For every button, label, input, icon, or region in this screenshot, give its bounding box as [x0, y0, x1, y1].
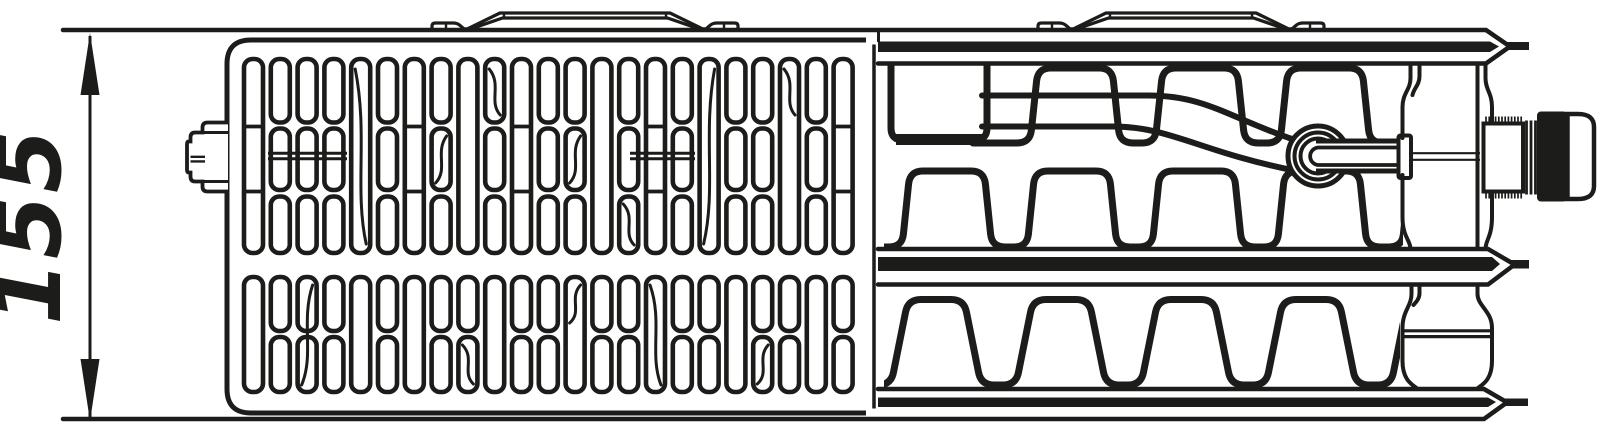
- fin-through-slot: [462, 345, 473, 384]
- grille-slot: [432, 197, 451, 254]
- valve-knob: [1537, 112, 1568, 202]
- radiator-panels: [63, 30, 1529, 419]
- lower-channel-left-inner: [1414, 286, 1420, 305]
- grille-slot: [512, 337, 531, 392]
- upper-channel-left-wall: [1403, 65, 1411, 138]
- dimension-arrow-bottom: [81, 359, 100, 421]
- drawing-svg: 155: [0, 0, 1600, 424]
- bracket-right-inner: [1077, 18, 1285, 29]
- upper-channel-left-inner: [1413, 65, 1420, 95]
- grille-slot: [432, 59, 451, 123]
- radiator-technical-drawing: 155: [0, 0, 1600, 424]
- dimension-label: 155: [0, 127, 82, 325]
- grille-slot: [539, 337, 558, 392]
- grille-slot: [834, 277, 853, 331]
- fin-through-slot: [757, 345, 768, 384]
- grille-slot: [834, 59, 853, 253]
- valve-ring-grooves: [1527, 121, 1536, 195]
- grille-slot: [592, 277, 611, 331]
- depth-dimension: 155: [0, 33, 100, 421]
- grille-slot: [485, 197, 504, 254]
- grille-slot: [539, 59, 558, 123]
- first-fin-foot-bar: [896, 134, 982, 145]
- top-grille: [187, 40, 874, 413]
- grille-slot: [807, 129, 826, 191]
- grille-slot: [271, 59, 290, 123]
- grille-slot: [753, 59, 772, 123]
- grille-slot: [592, 337, 611, 392]
- grille-slot: [432, 277, 451, 331]
- grille-slot: [458, 277, 477, 331]
- grille-slot: [298, 59, 317, 123]
- fin-through-slot: [570, 285, 581, 323]
- grille-slot: [539, 129, 558, 191]
- grille-slot: [378, 337, 397, 392]
- grille-slot: [726, 59, 745, 123]
- grille-slot: [566, 59, 585, 123]
- grille-slot: [351, 277, 370, 392]
- valve-seat-assembly: [1288, 126, 1480, 186]
- grille-slot: [539, 197, 558, 254]
- fin-through-slot: [704, 69, 715, 244]
- grille-slot: [378, 59, 397, 123]
- fin-through-slot: [623, 204, 634, 245]
- front-panel-band: [878, 398, 1496, 408]
- grille-slot: [378, 197, 397, 254]
- grille-slot: [378, 277, 397, 331]
- grille-slot: [405, 59, 424, 253]
- fin-through-slot: [489, 69, 500, 115]
- grille-slot: [432, 337, 451, 392]
- grille-slot: [807, 197, 826, 254]
- bracket-left-inner: [471, 18, 699, 29]
- grille-slot: [512, 59, 531, 253]
- grille-slot: [834, 337, 853, 392]
- grille-slot: [673, 59, 692, 123]
- grille-slot: [458, 59, 477, 253]
- grille-slot: [780, 277, 799, 331]
- pipe-bore: [1310, 148, 1402, 166]
- grille-slot: [324, 277, 343, 331]
- grille-slot: [244, 277, 263, 392]
- rear-panel-band: [878, 42, 1499, 53]
- grille-slot: [646, 59, 665, 253]
- fin-through-slot: [355, 69, 366, 244]
- lower-channel-crossbar: [1405, 331, 1491, 337]
- grille-slot: [324, 337, 343, 392]
- wall-brackets: [432, 12, 1324, 30]
- grille-slot: [271, 197, 290, 254]
- grille-slot: [244, 59, 263, 253]
- grille-slot: [807, 59, 826, 123]
- grille-slot: [726, 129, 745, 191]
- valve-body: [1484, 112, 1595, 202]
- grille-slot: [619, 59, 638, 123]
- front-panel-stub: [1505, 399, 1529, 407]
- upper-channel-left-lower: [1403, 175, 1411, 249]
- grille-slot: [780, 337, 799, 392]
- fin-through-slot: [302, 285, 313, 385]
- grille-slot: [271, 277, 290, 331]
- fin-through-slot: [436, 136, 447, 183]
- grille-slot: [673, 337, 692, 392]
- grille-slot: [566, 197, 585, 254]
- first-wide-fin: [891, 64, 987, 140]
- valve-threaded-section: [1484, 124, 1524, 192]
- grille-slot: [592, 59, 611, 253]
- grille-slots: [244, 59, 854, 392]
- grille-slot: [673, 277, 692, 331]
- fin-through-slot: [650, 285, 661, 385]
- water-channels: [1403, 65, 1493, 388]
- grille-slot: [512, 277, 531, 331]
- grille-slot: [485, 277, 504, 392]
- pipe-end-flange: [1399, 136, 1412, 179]
- grille-slot: [405, 277, 424, 392]
- grille-slot: [700, 337, 719, 392]
- grille-slot: [619, 277, 638, 331]
- grille-slot: [378, 129, 397, 191]
- grille-slot: [700, 277, 719, 331]
- grille-slot: [753, 277, 772, 331]
- fin-through-slot: [784, 69, 795, 115]
- middle-panel-band: [878, 257, 1500, 271]
- valve-spindle: [1411, 153, 1480, 160]
- grille-slot: [753, 129, 772, 191]
- grille-slot: [271, 337, 290, 392]
- grille-slot: [324, 59, 343, 123]
- grille-slot: [485, 129, 504, 191]
- grille-slot: [324, 197, 343, 254]
- grille-slot: [539, 277, 558, 331]
- grille-slot: [298, 197, 317, 254]
- grille-slot: [807, 277, 826, 392]
- grille-slot: [753, 197, 772, 254]
- valve-end-cap: [1568, 114, 1595, 199]
- grille-slot: [726, 277, 745, 392]
- grille-slot: [673, 197, 692, 254]
- grille-slot: [726, 197, 745, 254]
- grille-slot: [619, 337, 638, 392]
- dimension-arrow-top: [81, 33, 100, 95]
- fin-through-slot: [570, 136, 581, 183]
